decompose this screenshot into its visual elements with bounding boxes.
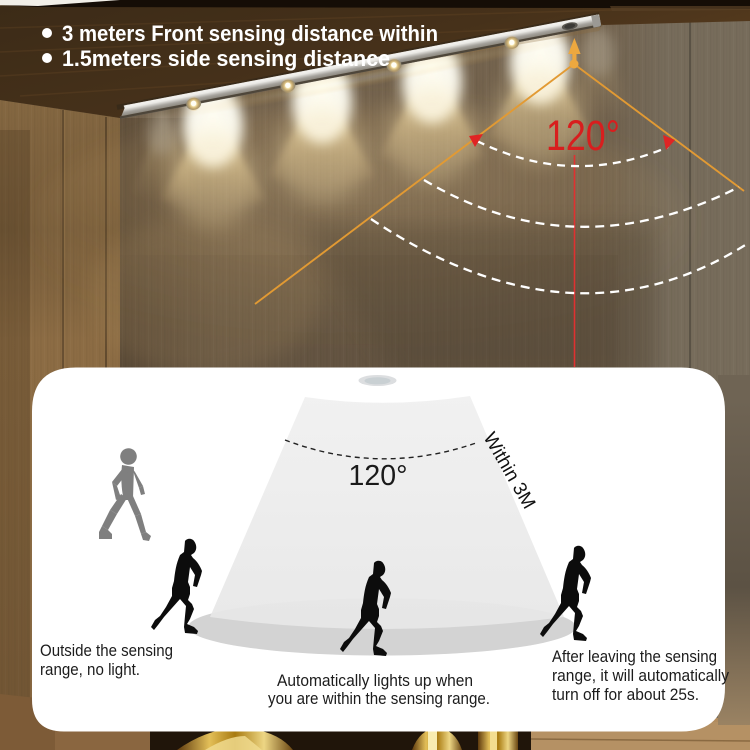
svg-text:Automatically lights up when: Automatically lights up when — [277, 671, 473, 690]
svg-text:range, no light.: range, no light. — [40, 660, 140, 679]
svg-text:After leaving the sensing: After leaving the sensing — [552, 647, 717, 666]
svg-text:1.5meters side sensing distanc: 1.5meters side sensing distance — [62, 46, 390, 71]
svg-text:120°: 120° — [349, 460, 408, 492]
svg-text:you are within the sensing ran: you are within the sensing range. — [268, 689, 490, 708]
svg-text:turn off for about 25s.: turn off for about 25s. — [552, 685, 699, 704]
svg-text:120°: 120° — [546, 112, 620, 160]
svg-text:range, it will automatically: range, it will automatically — [552, 666, 729, 685]
svg-text:3 meters Front sensing distanc: 3 meters Front sensing distance within — [62, 21, 438, 46]
svg-text:Outside the sensing: Outside the sensing — [40, 641, 173, 660]
